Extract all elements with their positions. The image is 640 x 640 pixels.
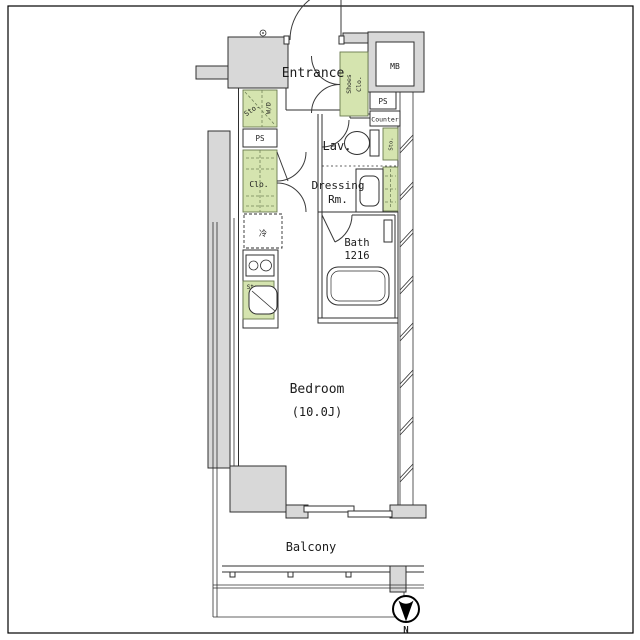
lavatory-label: Lav. [323,139,352,153]
closet-door-arc-top [277,152,306,181]
dressing-room-label-2: Rm. [328,193,348,206]
floor-plan-canvas: MB PS Coun [0,0,640,640]
closet-label: Clo. [249,180,268,189]
bath-south-wall [318,318,398,323]
wall-bottom-window-right [390,505,426,518]
stove [246,255,274,276]
entrance-label: Entrance [282,66,345,81]
door-scope-dot [262,32,264,34]
wall-top-left-block [228,37,288,88]
door-jamb-left [284,36,289,44]
railing-post [230,572,235,577]
shoes-closet-label-2: Clo. [355,76,363,92]
bathtub [327,267,389,305]
pipe-space-left-label: PS [255,134,265,143]
balcony-label: Balcony [286,540,337,554]
bedroom-size-label: (10.0J) [292,405,343,419]
bath-counter-shelf [384,220,392,242]
wall-bottom-left-block [230,466,286,512]
compass-north-label: N [403,626,408,636]
right-exterior-wall [400,92,413,505]
washer-dryer-label: W/D [265,102,273,114]
railing-post [288,572,293,577]
compass: N [393,596,419,636]
closet-door-arc-bottom [277,183,306,212]
shoes-closet-label-1: Shoes [345,74,353,94]
dressing-room-label-1: Dressing [312,179,365,192]
meter-box-label: MB [390,62,400,71]
refrigerator-label: 冷 [259,228,267,238]
counter-label: Counter [371,116,398,124]
toilet-tank [370,130,379,156]
bath-label-2: 1216 [344,250,369,262]
bath-label-1: Bath [344,237,369,249]
sliding-window-sash-left [304,506,354,512]
wall-stub-left [196,66,228,79]
railing-post [346,572,351,577]
bath-door-leaf [322,215,335,242]
toilet-storage-label: Sto. [389,137,395,150]
wall-left-strip [208,131,230,468]
sliding-window-sash-right [348,511,392,517]
bedroom-label: Bedroom [290,382,345,397]
wall-door-right [343,33,369,43]
door-jamb-right [339,36,344,44]
shoes-door-arc-bottom [312,85,341,114]
closet-door-leaf [277,152,288,181]
pipe-space-right-label: PS [378,97,388,106]
wall-hatch-ticks [400,135,413,482]
kitchen-sink [249,286,277,314]
fixtures [327,130,392,305]
